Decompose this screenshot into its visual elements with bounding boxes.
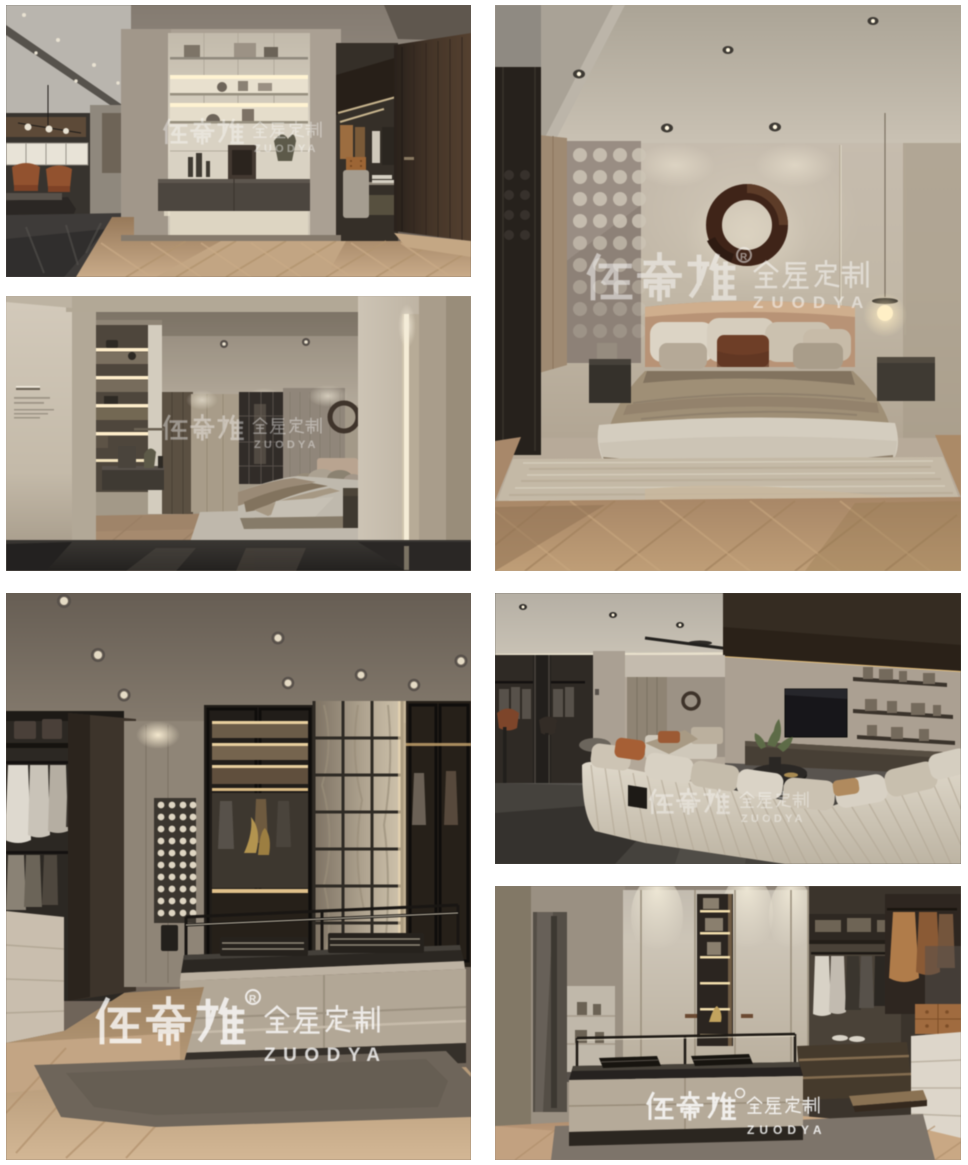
svg-text:ZUODYA: ZUODYA bbox=[753, 293, 871, 312]
svg-text:ZUODYA: ZUODYA bbox=[747, 1123, 827, 1137]
svg-text:R: R bbox=[740, 252, 748, 263]
svg-text:ZUODYA: ZUODYA bbox=[254, 143, 319, 155]
svg-text:R: R bbox=[249, 994, 257, 1005]
svg-text:ZUODYA: ZUODYA bbox=[264, 1045, 387, 1066]
svg-text:ZUODYA: ZUODYA bbox=[254, 439, 319, 451]
svg-text:ZUODYA: ZUODYA bbox=[741, 813, 806, 825]
